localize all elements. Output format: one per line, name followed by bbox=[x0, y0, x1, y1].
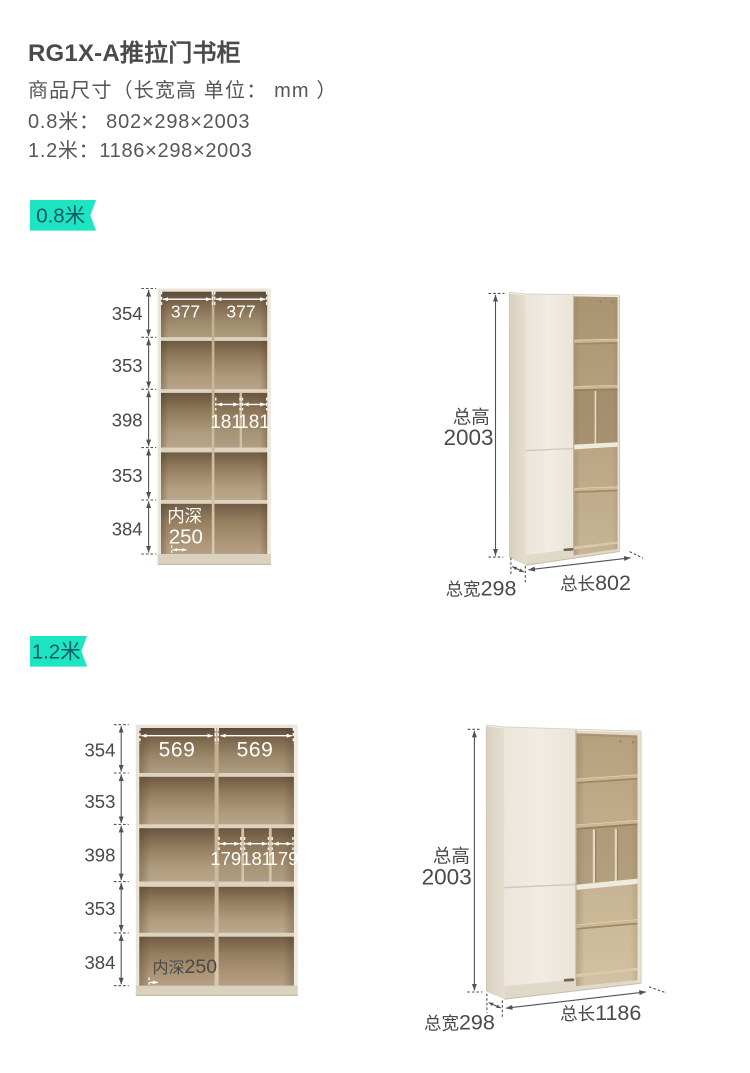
svg-text:总长802: 总长802 bbox=[560, 571, 631, 595]
svg-text:569: 569 bbox=[159, 739, 196, 762]
svg-text:384: 384 bbox=[85, 952, 116, 973]
svg-text:179: 179 bbox=[210, 848, 241, 869]
svg-text:354: 354 bbox=[112, 303, 143, 324]
svg-text:内深: 内深 bbox=[167, 506, 202, 526]
svg-text:398: 398 bbox=[112, 409, 143, 430]
svg-text:1.2米: 1.2米 bbox=[32, 640, 81, 663]
svg-text:181: 181 bbox=[238, 412, 270, 433]
svg-text:0.8米: 0.8米 bbox=[36, 204, 85, 227]
svg-text:总高: 总高 bbox=[433, 845, 470, 866]
svg-text:总宽298: 总宽298 bbox=[446, 576, 517, 600]
svg-text:353: 353 bbox=[112, 355, 143, 376]
svg-text:377: 377 bbox=[171, 301, 200, 321]
svg-text:377: 377 bbox=[226, 301, 255, 321]
svg-text:354: 354 bbox=[85, 739, 116, 760]
svg-text:内深250: 内深250 bbox=[153, 956, 218, 978]
svg-text:569: 569 bbox=[237, 739, 274, 762]
svg-text:2003: 2003 bbox=[443, 425, 493, 450]
svg-text:353: 353 bbox=[112, 465, 143, 486]
svg-text:353: 353 bbox=[85, 791, 116, 812]
svg-text:353: 353 bbox=[85, 898, 116, 919]
svg-text:总长1186: 总长1186 bbox=[560, 1001, 641, 1025]
svg-text:179: 179 bbox=[268, 848, 299, 869]
svg-text:2003: 2003 bbox=[422, 864, 472, 889]
svg-text:250: 250 bbox=[169, 526, 203, 549]
svg-text:384: 384 bbox=[112, 518, 143, 539]
svg-text:398: 398 bbox=[85, 845, 116, 866]
svg-text:总宽298: 总宽298 bbox=[424, 1010, 495, 1034]
